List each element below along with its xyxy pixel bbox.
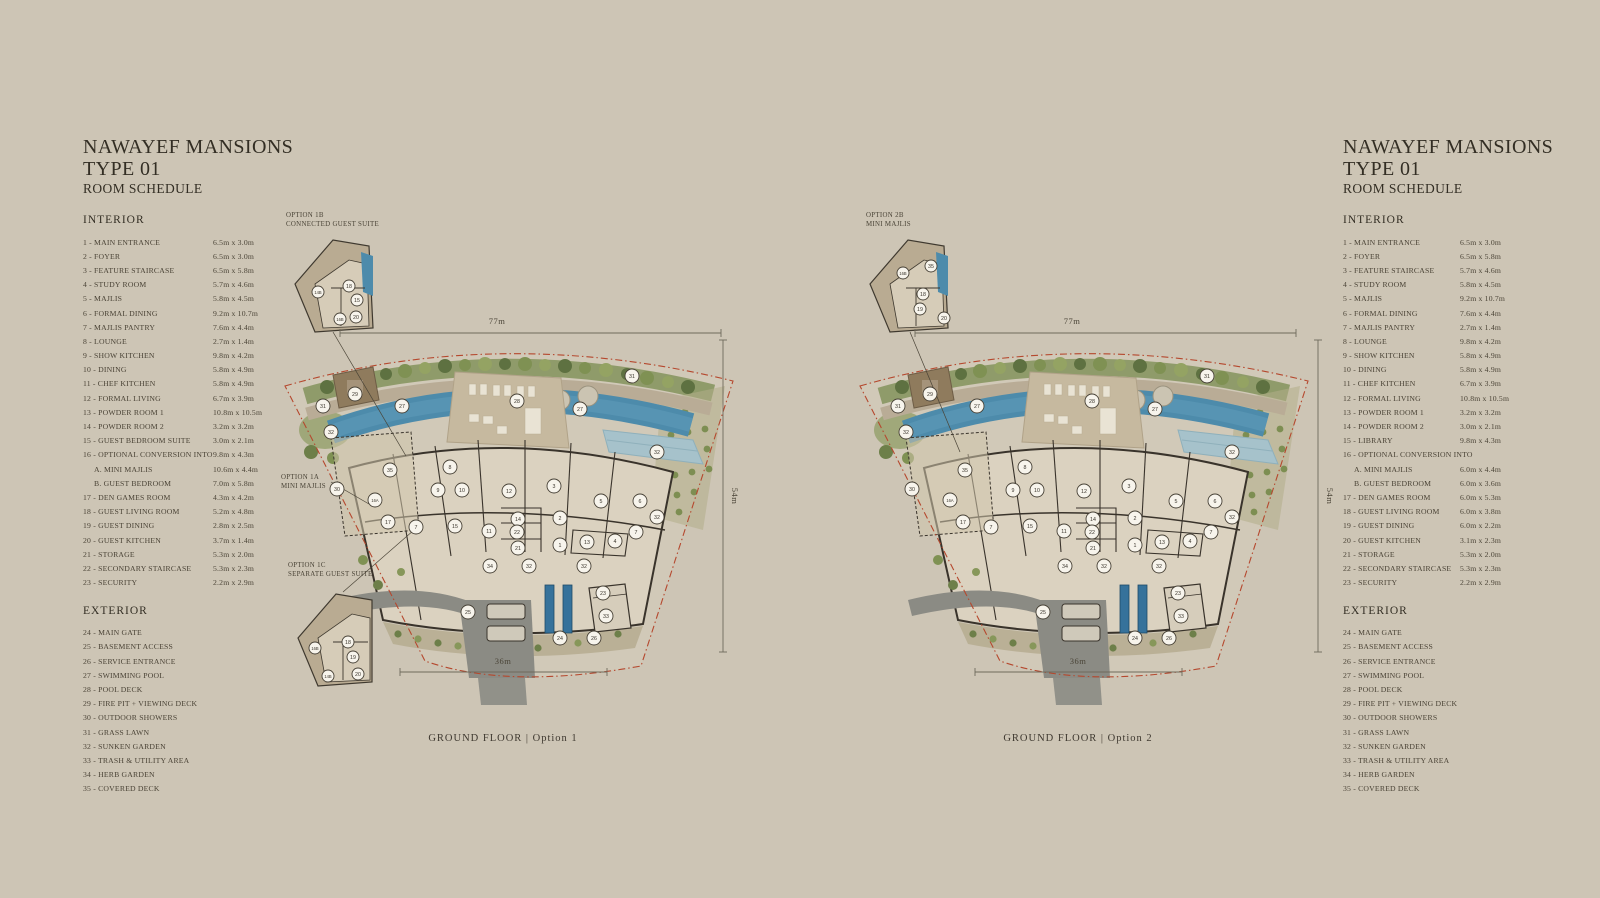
schedule-row: 35 - COVERED DECK [1343, 782, 1558, 796]
room-marker-label: 11 [1061, 529, 1067, 535]
room-marker-label: 1 [559, 543, 562, 549]
room-name: 7 - MAJLIS PANTRY [1343, 323, 1460, 332]
room-marker-label: 25 [1040, 610, 1046, 616]
room-name: 5 - MAJLIS [83, 294, 213, 303]
room-name: 2 - FOYER [1343, 252, 1460, 261]
room-name: 6 - FORMAL DINING [83, 309, 213, 318]
room-name: 18 - GUEST LIVING ROOM [83, 507, 213, 516]
schedule-row: 10 - DINING 5.8m x 4.9m [83, 363, 298, 377]
svg-text:OPTION 2B: OPTION 2B [866, 212, 904, 219]
room-dims: 7.6m x 4.4m [1460, 309, 1501, 318]
schedule-row: 34 - HERB GARDEN [1343, 768, 1558, 782]
room-marker-label: 14B [324, 674, 332, 679]
room-marker-label: 6 [639, 499, 642, 505]
room-dims: 7.0m x 5.8m [213, 479, 254, 488]
svg-text:MINI MAJLIS: MINI MAJLIS [866, 221, 911, 228]
room-marker-label: 25 [465, 610, 471, 616]
room-dims: 2.2m x 2.9m [213, 578, 254, 587]
interior-header: INTERIOR [83, 214, 298, 226]
room-marker-label: 4 [614, 539, 617, 545]
room-dims: 6.0m x 4.4m [1460, 465, 1501, 474]
room-marker-label: 27 [974, 404, 980, 410]
room-marker-label: 12 [1081, 489, 1087, 495]
page-title: NAWAYEF MANSIONS TYPE 01 [1343, 136, 1558, 180]
room-name: 10 - DINING [83, 365, 213, 374]
interior-section: INTERIOR 1 - MAIN ENTRANCE 6.5m x 3.0m 2… [83, 214, 298, 590]
room-dims: 6.0m x 2.2m [1460, 521, 1501, 530]
room-marker-label: 32 [903, 430, 909, 436]
schedule-row: B. GUEST BEDROOM 6.0m x 3.6m [1343, 476, 1558, 490]
room-name: 22 - SECONDARY STAIRCASE [83, 564, 213, 573]
schedule-row: 2 - FOYER 6.5m x 3.0m [83, 249, 298, 263]
room-marker-label: 14 [515, 517, 521, 523]
room-marker-label: 32 [1229, 450, 1235, 456]
room-dims: 10.8m x 10.5m [213, 408, 262, 417]
schedule-row: 21 - STORAGE 5.3m x 2.0m [1343, 547, 1558, 561]
svg-text:SEPARATE GUEST SUITE: SEPARATE GUEST SUITE [288, 571, 373, 578]
schedule-row: 1 - MAIN ENTRANCE 6.5m x 3.0m [83, 235, 298, 249]
room-dims: 5.3m x 2.0m [213, 550, 254, 559]
room-dims: 9.2m x 10.7m [1460, 294, 1505, 303]
room-dims: 5.8m x 4.9m [213, 379, 254, 388]
room-marker-label: 14 [1090, 517, 1096, 523]
room-name: 4 - STUDY ROOM [83, 280, 213, 289]
room-name: 5 - MAJLIS [1343, 294, 1460, 303]
room-name: 13 - POWDER ROOM 1 [83, 408, 213, 417]
interior-section: INTERIOR 1 - MAIN ENTRANCE 6.5m x 3.0m 2… [1343, 214, 1558, 590]
room-marker-label: 10 [459, 488, 465, 494]
schedule-row: 10 - DINING 5.8m x 4.9m [1343, 363, 1558, 377]
page-title: NAWAYEF MANSIONS TYPE 01 [83, 136, 298, 180]
schedule-row: 13 - POWDER ROOM 1 3.2m x 3.2m [1343, 405, 1558, 419]
room-name: 24 - MAIN GATE [83, 628, 213, 637]
schedule-row: 23 - SECURITY 2.2m x 2.9m [1343, 576, 1558, 590]
room-dims: 6.0m x 3.8m [1460, 507, 1501, 516]
schedule-row: 27 - SWIMMING POOL [83, 668, 298, 682]
room-marker-label: 32 [328, 430, 334, 436]
schedule-row: 8 - LOUNGE 2.7m x 1.4m [83, 334, 298, 348]
schedule-row: 19 - GUEST DINING 6.0m x 2.2m [1343, 519, 1558, 533]
plan-caption: GROUND FLOOR | Option 1 [428, 733, 577, 744]
room-dims: 5.7m x 4.6m [213, 280, 254, 289]
room-dims: 2.8m x 2.5m [213, 521, 254, 530]
room-schedule-left: NAWAYEF MANSIONS TYPE 01 ROOM SCHEDULE I… [83, 136, 298, 796]
room-name: 27 - SWIMMING POOL [1343, 671, 1460, 680]
room-name: 12 - FORMAL LIVING [83, 394, 213, 403]
room-name: 20 - GUEST KITCHEN [1343, 536, 1460, 545]
schedule-row: 4 - STUDY ROOM 5.8m x 4.5m [1343, 278, 1558, 292]
room-marker-label: 19 [350, 655, 356, 661]
room-marker-label: 15 [452, 524, 458, 530]
room-name: 30 - OUTDOOR SHOWERS [83, 713, 213, 722]
room-marker-label: 28 [1089, 399, 1095, 405]
room-marker-label: 20 [941, 316, 947, 322]
room-marker-label: 2 [559, 516, 562, 522]
schedule-row: 25 - BASEMENT ACCESS [83, 640, 298, 654]
room-dims: 3.0m x 2.1m [213, 436, 254, 445]
room-marker-label: 18 [920, 292, 926, 298]
room-marker-label: 31 [895, 404, 901, 410]
exterior-list: 24 - MAIN GATE 25 - BASEMENT ACCESS 26 -… [1343, 626, 1558, 796]
schedule-row: 5 - MAJLIS 9.2m x 10.7m [1343, 292, 1558, 306]
schedule-row: 18 - GUEST LIVING ROOM 6.0m x 3.8m [1343, 505, 1558, 519]
schedule-row: 31 - GRASS LAWN [1343, 725, 1558, 739]
room-marker-label: 9 [437, 488, 440, 494]
room-marker-label: 32 [1156, 564, 1162, 570]
room-marker-label: 24 [1132, 636, 1138, 642]
page-subtitle: ROOM SCHEDULE [83, 181, 298, 197]
svg-text:36m: 36m [495, 656, 512, 666]
room-name: 34 - HERB GARDEN [1343, 770, 1460, 779]
room-dims: 3.2m x 3.2m [213, 422, 254, 431]
svg-text:77m: 77m [489, 316, 506, 326]
room-marker-label: 33 [1178, 614, 1184, 620]
schedule-row: 20 - GUEST KITCHEN 3.7m x 1.4m [83, 533, 298, 547]
room-marker-label: 26 [1166, 636, 1172, 642]
exterior-section: EXTERIOR 24 - MAIN GATE 25 - BASEMENT AC… [83, 605, 298, 796]
room-dims: 5.7m x 4.6m [1460, 266, 1501, 275]
schedule-row: 3 - FEATURE STAIRCASE 6.5m x 5.8m [83, 263, 298, 277]
room-dims: 9.2m x 10.7m [213, 309, 258, 318]
room-marker-label: 14B [314, 290, 322, 295]
room-marker-label: 22 [1089, 530, 1095, 536]
room-name: 8 - LOUNGE [1343, 337, 1460, 346]
room-marker-label: 27 [1152, 407, 1158, 413]
room-dims: 3.1m x 2.3m [1460, 536, 1501, 545]
room-marker-label: 32 [1229, 515, 1235, 521]
room-marker-label: 1 [1134, 543, 1137, 549]
room-name: 13 - POWDER ROOM 1 [1343, 408, 1460, 417]
room-dims: 5.8m x 4.9m [213, 365, 254, 374]
dimension-right: 54m [1314, 340, 1335, 652]
room-marker-label: 23 [600, 591, 606, 597]
schedule-row: 22 - SECONDARY STAIRCASE 5.3m x 2.3m [1343, 561, 1558, 575]
interior-header: INTERIOR [1343, 214, 1558, 226]
schedule-row: 30 - OUTDOOR SHOWERS [1343, 711, 1558, 725]
room-dims: 5.8m x 4.5m [213, 294, 254, 303]
room-marker-label: 13 [584, 540, 590, 546]
room-marker-label: 7 [1210, 530, 1213, 536]
room-name: 34 - HERB GARDEN [83, 770, 213, 779]
exterior-list: 24 - MAIN GATE 25 - BASEMENT ACCESS 26 -… [83, 626, 298, 796]
room-marker-label: 16B [336, 317, 344, 322]
room-name: 3 - FEATURE STAIRCASE [1343, 266, 1460, 275]
room-marker-label: 16B [311, 646, 319, 651]
room-marker-label: 22 [514, 530, 520, 536]
room-marker-label: 35 [928, 264, 934, 270]
room-dims: 3.2m x 3.2m [1460, 408, 1501, 417]
room-marker-label: 32 [581, 564, 587, 570]
room-name: 35 - COVERED DECK [1343, 784, 1460, 793]
room-marker-label: 9 [1012, 488, 1015, 494]
room-marker-label: 11 [486, 529, 492, 535]
room-name: 29 - FIRE PIT + VIEWING DECK [1343, 699, 1460, 708]
room-dims: 6.5m x 3.0m [213, 238, 254, 247]
room-name: 31 - GRASS LAWN [83, 728, 213, 737]
plan-caption: GROUND FLOOR | Option 2 [1003, 733, 1152, 744]
room-marker-label: 16A [371, 498, 379, 503]
room-marker-label: 16B [899, 271, 907, 276]
dimension-top: 77m [915, 316, 1296, 337]
room-name: 28 - POOL DECK [83, 685, 213, 694]
room-marker-label: 32 [654, 515, 660, 521]
room-name: 26 - SERVICE ENTRANCE [83, 657, 213, 666]
schedule-row: 29 - FIRE PIT + VIEWING DECK [83, 697, 298, 711]
room-name: 9 - SHOW KITCHEN [83, 351, 213, 360]
room-marker-label: 34 [487, 564, 493, 570]
schedule-row: 3 - FEATURE STAIRCASE 5.7m x 4.6m [1343, 263, 1558, 277]
room-marker-label: 32 [526, 564, 532, 570]
schedule-row: 15 - LIBRARY 9.8m x 4.3m [1343, 434, 1558, 448]
exterior-header: EXTERIOR [83, 605, 298, 617]
room-marker-label: 12 [506, 489, 512, 495]
room-name: 21 - STORAGE [83, 550, 213, 559]
exterior-section: EXTERIOR 24 - MAIN GATE 25 - BASEMENT AC… [1343, 605, 1558, 796]
room-marker-label: 21 [515, 546, 521, 552]
dimension-top: 77m [340, 316, 721, 337]
schedule-row: 22 - SECONDARY STAIRCASE 5.3m x 2.3m [83, 561, 298, 575]
room-name: 14 - POWDER ROOM 2 [83, 422, 213, 431]
room-name: 1 - MAIN ENTRANCE [1343, 238, 1460, 247]
room-dims: 5.3m x 2.3m [213, 564, 254, 573]
interior-list: 1 - MAIN ENTRANCE 6.5m x 3.0m 2 - FOYER … [1343, 235, 1558, 590]
room-name: 3 - FEATURE STAIRCASE [83, 266, 213, 275]
room-marker-label: 18 [345, 640, 351, 646]
room-name: A. MINI MAJLIS [83, 465, 213, 474]
schedule-row: 11 - CHEF KITCHEN 6.7m x 3.9m [1343, 377, 1558, 391]
schedule-row: 6 - FORMAL DINING 7.6m x 4.4m [1343, 306, 1558, 320]
room-marker-label: 34 [1062, 564, 1068, 570]
schedule-row: 33 - TRASH & UTILITY AREA [1343, 753, 1558, 767]
room-marker-label: 28 [514, 399, 520, 405]
schedule-row: 17 - DEN GAMES ROOM 6.0m x 5.3m [1343, 490, 1558, 504]
schedule-row: 13 - POWDER ROOM 1 10.8m x 10.5m [83, 405, 298, 419]
room-marker-label: 10 [1034, 488, 1040, 494]
room-name: 20 - GUEST KITCHEN [83, 536, 213, 545]
schedule-row: 28 - POOL DECK [83, 682, 298, 696]
room-marker-label: 7 [635, 530, 638, 536]
page-subtitle: ROOM SCHEDULE [1343, 181, 1558, 197]
room-marker-label: 23 [1175, 591, 1181, 597]
brochure-sheet: NAWAYEF MANSIONS TYPE 01 ROOM SCHEDULE I… [0, 0, 1600, 898]
room-dims: 5.8m x 4.5m [1460, 280, 1501, 289]
room-name: 14 - POWDER ROOM 2 [1343, 422, 1460, 431]
room-name: 16 - OPTIONAL CONVERSION INTO [1343, 450, 1460, 459]
schedule-row: 23 - SECURITY 2.2m x 2.9m [83, 576, 298, 590]
room-dims: 6.7m x 3.9m [213, 394, 254, 403]
room-marker-label: 32 [654, 450, 660, 456]
room-dims: 5.3m x 2.3m [1460, 564, 1501, 573]
room-marker-label: 8 [1024, 465, 1027, 471]
schedule-row: 16 - OPTIONAL CONVERSION INTO 9.8m x 4.3… [83, 448, 298, 462]
room-dims: 6.7m x 3.9m [1460, 379, 1501, 388]
schedule-row: 14 - POWDER ROOM 2 3.2m x 3.2m [83, 419, 298, 433]
schedule-row: 18 - GUEST LIVING ROOM 5.2m x 4.8m [83, 505, 298, 519]
room-marker-label: 18 [346, 284, 352, 290]
room-name: 8 - LOUNGE [83, 337, 213, 346]
svg-text:OPTION 1B: OPTION 1B [286, 212, 324, 219]
room-marker-label: 27 [399, 404, 405, 410]
room-marker-label: 5 [600, 499, 603, 505]
room-name: 17 - DEN GAMES ROOM [83, 493, 213, 502]
room-dims: 6.5m x 3.0m [1460, 238, 1501, 247]
svg-text:OPTION 1A: OPTION 1A [281, 474, 319, 481]
room-marker-label: 35 [962, 468, 968, 474]
schedule-row: 15 - GUEST BEDROOM SUITE 3.0m x 2.1m [83, 434, 298, 448]
room-name: 33 - TRASH & UTILITY AREA [83, 756, 213, 765]
schedule-row: 32 - SUNKEN GARDEN [83, 739, 298, 753]
schedule-row: 33 - TRASH & UTILITY AREA [83, 753, 298, 767]
schedule-row: 26 - SERVICE ENTRANCE [1343, 654, 1558, 668]
room-name: 21 - STORAGE [1343, 550, 1460, 559]
room-marker-label: 4 [1189, 539, 1192, 545]
room-name: 19 - GUEST DINING [1343, 521, 1460, 530]
room-name: 23 - SECURITY [1343, 578, 1460, 587]
room-name: 1 - MAIN ENTRANCE [83, 238, 213, 247]
schedule-row: 1 - MAIN ENTRANCE 6.5m x 3.0m [1343, 235, 1558, 249]
room-dims: 9.8m x 4.3m [1460, 436, 1501, 445]
schedule-row: 2 - FOYER 6.5m x 5.8m [1343, 249, 1558, 263]
schedule-row: 29 - FIRE PIT + VIEWING DECK [1343, 697, 1558, 711]
schedule-row: 12 - FORMAL LIVING 6.7m x 3.9m [83, 391, 298, 405]
room-name: 22 - SECONDARY STAIRCASE [1343, 564, 1460, 573]
room-name: 9 - SHOW KITCHEN [1343, 351, 1460, 360]
schedule-row: 12 - FORMAL LIVING 10.8m x 10.5m [1343, 391, 1558, 405]
room-name: 4 - STUDY ROOM [1343, 280, 1460, 289]
room-dims: 2.7m x 1.4m [213, 337, 254, 346]
room-marker-label: 17 [385, 520, 391, 526]
schedule-row: 26 - SERVICE ENTRANCE [83, 654, 298, 668]
room-name: 25 - BASEMENT ACCESS [83, 642, 213, 651]
schedule-row: A. MINI MAJLIS 10.6m x 4.4m [83, 462, 298, 476]
svg-text:36m: 36m [1070, 656, 1087, 666]
room-marker-label: 32 [1101, 564, 1107, 570]
interior-list: 1 - MAIN ENTRANCE 6.5m x 3.0m 2 - FOYER … [83, 235, 298, 590]
room-schedule-right: NAWAYEF MANSIONS TYPE 01 ROOM SCHEDULE I… [1343, 136, 1558, 796]
room-marker-label: 31 [1204, 374, 1210, 380]
room-name: 15 - LIBRARY [1343, 436, 1460, 445]
schedule-row: 9 - SHOW KITCHEN 9.8m x 4.2m [83, 349, 298, 363]
room-name: 7 - MAJLIS PANTRY [83, 323, 213, 332]
room-marker-label: 2 [1134, 516, 1137, 522]
room-marker-label: 8 [449, 465, 452, 471]
schedule-row: 5 - MAJLIS 5.8m x 4.5m [83, 292, 298, 306]
schedule-row: 14 - POWDER ROOM 2 3.0m x 2.1m [1343, 419, 1558, 433]
exterior-header: EXTERIOR [1343, 605, 1558, 617]
room-marker-label: 6 [1214, 499, 1217, 505]
schedule-row: 24 - MAIN GATE [83, 626, 298, 640]
room-dims: 10.8m x 10.5m [1460, 394, 1509, 403]
svg-text:OPTION 1C: OPTION 1C [288, 562, 326, 569]
room-dims: 7.6m x 4.4m [213, 323, 254, 332]
schedule-row: 21 - STORAGE 5.3m x 2.0m [83, 547, 298, 561]
schedule-row: 8 - LOUNGE 9.8m x 4.2m [1343, 334, 1558, 348]
room-name: 25 - BASEMENT ACCESS [1343, 642, 1460, 651]
room-name: 11 - CHEF KITCHEN [1343, 379, 1460, 388]
room-marker-label: 31 [320, 404, 326, 410]
room-marker-label: 31 [629, 374, 635, 380]
svg-text:CONNECTED GUEST SUITE: CONNECTED GUEST SUITE [286, 221, 379, 228]
room-name: 15 - GUEST BEDROOM SUITE [83, 436, 213, 445]
floor-plan-option-2: OPTION 2B MINI MAJLIS 16B35181920 77m 54… [848, 200, 1338, 770]
room-marker-label: 3 [553, 484, 556, 490]
room-marker-label: 19 [917, 307, 923, 313]
room-name: B. GUEST BEDROOM [1343, 479, 1460, 488]
room-dims: 9.8m x 4.2m [1460, 337, 1501, 346]
room-dims: 9.8m x 4.3m [213, 450, 254, 459]
room-name: 16 - OPTIONAL CONVERSION INTO [83, 450, 213, 459]
room-dims: 6.0m x 3.6m [1460, 479, 1501, 488]
room-name: 35 - COVERED DECK [83, 784, 213, 793]
room-dims: 6.0m x 5.3m [1460, 493, 1501, 502]
schedule-row: 24 - MAIN GATE [1343, 626, 1558, 640]
schedule-row: 30 - OUTDOOR SHOWERS [83, 711, 298, 725]
room-dims: 5.8m x 4.9m [1460, 365, 1501, 374]
svg-text:54m: 54m [730, 488, 740, 505]
room-name: 30 - OUTDOOR SHOWERS [1343, 713, 1460, 722]
room-marker-label: 20 [355, 672, 361, 678]
room-marker-label: 30 [909, 487, 915, 493]
schedule-row: 32 - SUNKEN GARDEN [1343, 739, 1558, 753]
room-name: 19 - GUEST DINING [83, 521, 213, 530]
room-marker-label: 7 [415, 525, 418, 531]
floor-plan-option-1: OPTION 1B CONNECTED GUEST SUITE 14B18151… [273, 200, 763, 770]
schedule-row: 20 - GUEST KITCHEN 3.1m x 2.3m [1343, 533, 1558, 547]
svg-text:77m: 77m [1064, 316, 1081, 326]
schedule-row: 7 - MAJLIS PANTRY 7.6m x 4.4m [83, 320, 298, 334]
schedule-row: 35 - COVERED DECK [83, 782, 298, 796]
room-marker-label: 24 [557, 636, 563, 642]
room-name: 23 - SECURITY [83, 578, 213, 587]
room-marker-label: 21 [1090, 546, 1096, 552]
room-name: 11 - CHEF KITCHEN [83, 379, 213, 388]
room-name: 2 - FOYER [83, 252, 213, 261]
room-dims: 2.7m x 1.4m [1460, 323, 1501, 332]
room-name: 17 - DEN GAMES ROOM [1343, 493, 1460, 502]
room-marker-label: 30 [334, 487, 340, 493]
room-name: 32 - SUNKEN GARDEN [83, 742, 213, 751]
room-marker-label: 20 [353, 315, 359, 321]
schedule-row: 25 - BASEMENT ACCESS [1343, 640, 1558, 654]
room-marker-label: 15 [354, 298, 360, 304]
schedule-row: A. MINI MAJLIS 6.0m x 4.4m [1343, 462, 1558, 476]
room-dims: 6.5m x 5.8m [1460, 252, 1501, 261]
room-dims: 5.2m x 4.8m [213, 507, 254, 516]
room-name: 27 - SWIMMING POOL [83, 671, 213, 680]
room-marker-label: 29 [927, 392, 933, 398]
schedule-row: 11 - CHEF KITCHEN 5.8m x 4.9m [83, 377, 298, 391]
room-marker-label: 16A [946, 498, 954, 503]
room-dims: 4.3m x 4.2m [213, 493, 254, 502]
room-name: 18 - GUEST LIVING ROOM [1343, 507, 1460, 516]
schedule-row: 31 - GRASS LAWN [83, 725, 298, 739]
schedule-row: 17 - DEN GAMES ROOM 4.3m x 4.2m [83, 490, 298, 504]
room-dims: 3.7m x 1.4m [213, 536, 254, 545]
schedule-row: 6 - FORMAL DINING 9.2m x 10.7m [83, 306, 298, 320]
room-marker-label: 26 [591, 636, 597, 642]
room-name: 12 - FORMAL LIVING [1343, 394, 1460, 403]
room-dims: 10.6m x 4.4m [213, 465, 258, 474]
room-dims: 5.8m x 4.9m [1460, 351, 1501, 360]
room-marker-label: 5 [1175, 499, 1178, 505]
room-dims: 9.8m x 4.2m [213, 351, 254, 360]
svg-text:MINI MAJLIS: MINI MAJLIS [281, 483, 326, 490]
room-name: 28 - POOL DECK [1343, 685, 1460, 694]
schedule-row: 34 - HERB GARDEN [83, 768, 298, 782]
room-name: 26 - SERVICE ENTRANCE [1343, 657, 1460, 666]
schedule-row: B. GUEST BEDROOM 7.0m x 5.8m [83, 476, 298, 490]
room-dims: 6.5m x 5.8m [213, 266, 254, 275]
